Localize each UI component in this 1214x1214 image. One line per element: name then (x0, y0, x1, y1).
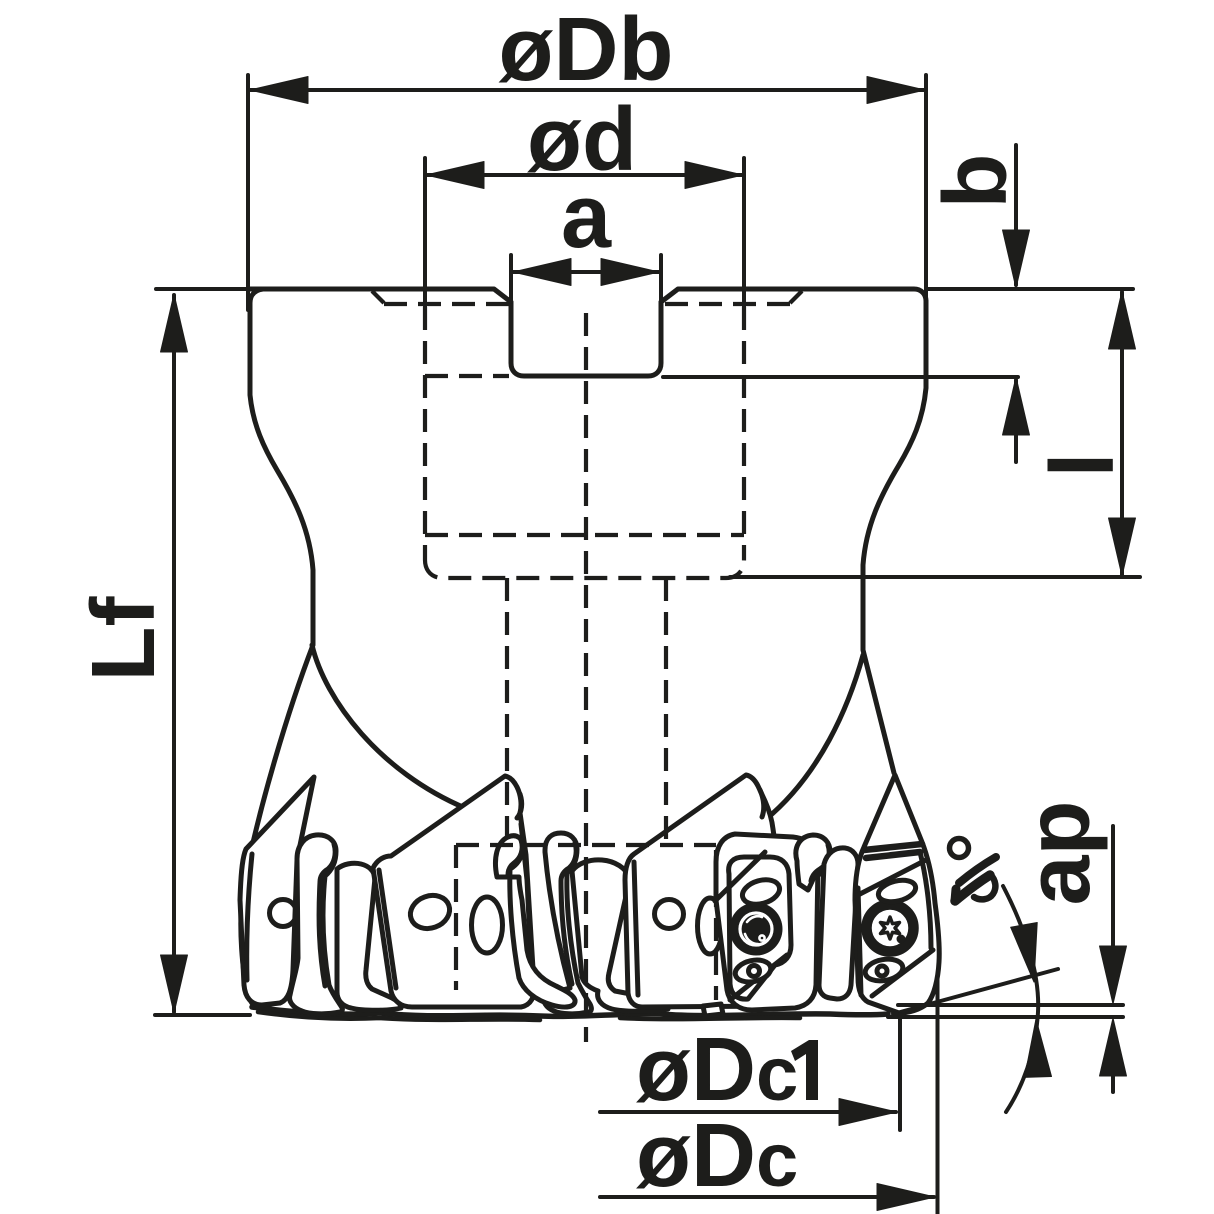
svg-text:a: a (561, 167, 612, 267)
svg-text:Lf: Lf (74, 596, 174, 682)
svg-text:b: b (926, 154, 1026, 209)
svg-text:l: l (1033, 452, 1133, 477)
svg-text:øDb: øDb (499, 0, 674, 100)
svg-text:ap: ap (1009, 800, 1109, 905)
svg-text:øDc: øDc (636, 1020, 798, 1120)
svg-text:øDc: øDc (636, 1106, 798, 1206)
